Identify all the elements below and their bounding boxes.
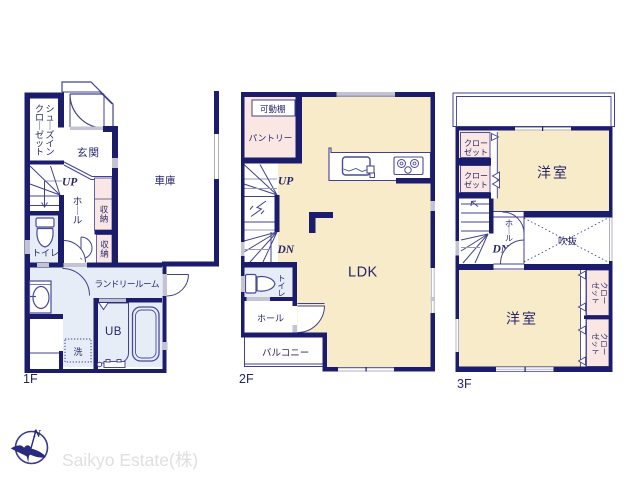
svg-text:Saikyo Estate(株): Saikyo Estate(株): [62, 450, 198, 470]
svg-text:ル: ル: [505, 234, 513, 243]
svg-text:ゼット: ゼット: [591, 333, 601, 356]
svg-text:ル: ル: [73, 216, 83, 227]
svg-text:吹抜: 吹抜: [558, 236, 578, 248]
svg-text:可動棚: 可動棚: [260, 104, 286, 114]
svg-text:N: N: [32, 428, 42, 440]
svg-text:ゼット: ゼット: [464, 180, 488, 190]
svg-text:パントリー: パントリー: [249, 133, 293, 143]
svg-text:ト: ト: [35, 147, 44, 157]
svg-text:UP: UP: [62, 177, 78, 189]
svg-text:クロー: クロー: [464, 172, 488, 181]
svg-text:UP: UP: [278, 176, 294, 188]
svg-text:ン: ン: [45, 147, 54, 157]
svg-text:ゼット: ゼット: [591, 282, 601, 305]
svg-text:洋室: 洋室: [537, 165, 569, 181]
svg-text:車庫: 車庫: [155, 174, 176, 187]
svg-text:トイレ: トイレ: [32, 248, 59, 258]
svg-text:1F: 1F: [23, 372, 38, 386]
svg-text:納: 納: [100, 249, 109, 259]
svg-text:洗: 洗: [74, 346, 83, 357]
svg-text:3F: 3F: [457, 377, 472, 391]
svg-text:洋室: 洋室: [506, 311, 538, 327]
svg-text:LDK: LDK: [348, 265, 378, 281]
svg-text:ゼット: ゼット: [464, 147, 488, 157]
svg-text:ホール: ホール: [257, 314, 284, 324]
svg-text:UB: UB: [105, 326, 122, 338]
svg-text:玄関: 玄関: [77, 146, 100, 159]
svg-text:納: 納: [100, 214, 109, 224]
svg-text:クロー: クロー: [464, 139, 488, 148]
svg-text:バルコニー: バルコニー: [262, 348, 309, 359]
svg-text:DN: DN: [277, 244, 295, 256]
svg-text:レ: レ: [278, 289, 286, 298]
svg-text:2F: 2F: [239, 372, 254, 386]
svg-text:ランドリールーム: ランドリールーム: [95, 279, 160, 289]
